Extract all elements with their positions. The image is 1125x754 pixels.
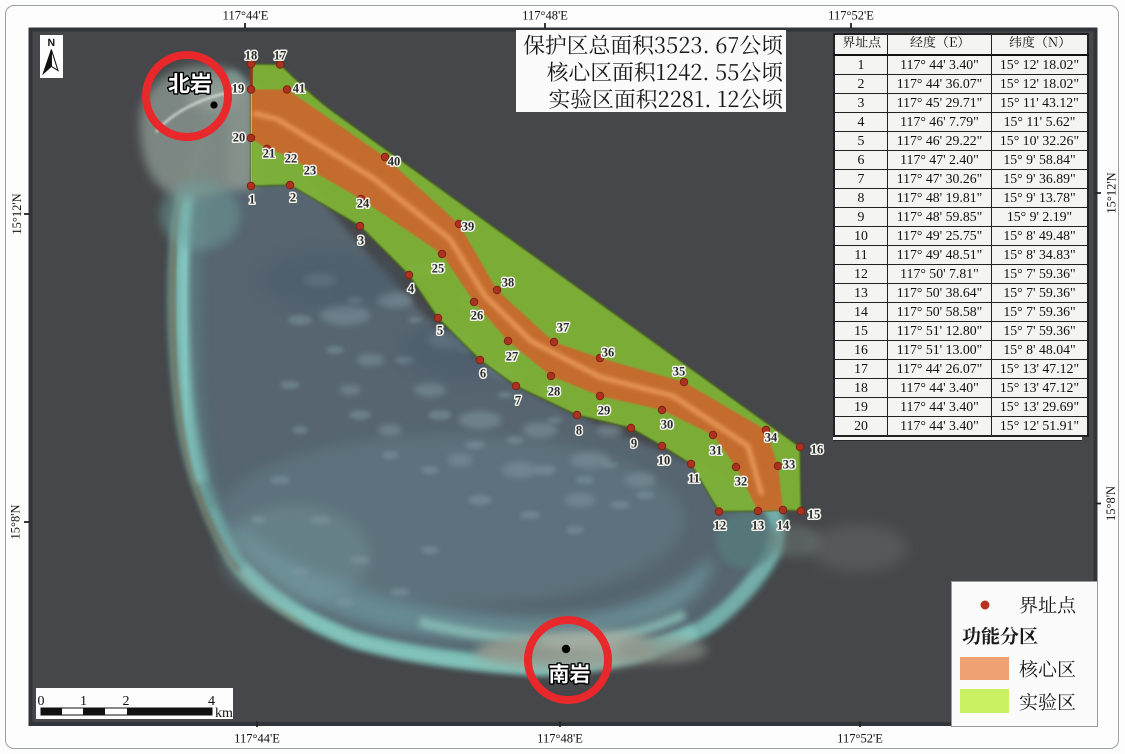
svg-text:1: 1 [249,193,255,207]
svg-text:23: 23 [304,164,317,178]
svg-text:20: 20 [233,131,246,145]
svg-text:28: 28 [548,385,561,399]
svg-text:15°8'N: 15°8'N [9,504,23,539]
svg-text:34: 34 [765,431,778,445]
svg-text:24: 24 [357,197,370,211]
svg-text:11: 11 [688,472,700,486]
svg-text:21: 21 [263,147,276,161]
svg-text:7: 7 [515,394,521,408]
svg-text:36: 36 [602,346,615,360]
svg-text:40: 40 [388,155,401,169]
svg-text:2: 2 [290,191,296,205]
svg-text:117°48'E: 117°48'E [537,732,583,746]
svg-text:3: 3 [358,234,364,248]
svg-text:15°12'N: 15°12'N [10,193,24,234]
svg-text:19: 19 [232,82,245,96]
svg-text:117°52'E: 117°52'E [828,9,874,23]
svg-text:32: 32 [735,475,748,489]
svg-text:17: 17 [274,49,287,63]
svg-text:12: 12 [714,519,727,533]
svg-text:km: km [215,706,233,721]
svg-text:41: 41 [293,82,306,96]
svg-text:31: 31 [710,444,723,458]
svg-text:5: 5 [437,324,443,338]
svg-text:33: 33 [783,458,796,472]
svg-text:16: 16 [811,443,824,457]
svg-text:26: 26 [471,309,484,323]
svg-text:14: 14 [777,519,790,533]
svg-text:35: 35 [673,365,686,379]
svg-text:15°12'N: 15°12'N [1105,172,1119,213]
svg-text:0: 0 [38,694,45,709]
svg-text:30: 30 [661,418,674,432]
svg-text:22: 22 [285,152,298,166]
svg-text:13: 13 [752,519,765,533]
svg-text:117°52'E: 117°52'E [837,732,883,746]
svg-text:37: 37 [557,321,570,335]
svg-text:117°44'E: 117°44'E [234,732,280,746]
svg-text:9: 9 [631,437,637,451]
svg-text:15: 15 [808,508,821,522]
svg-text:27: 27 [506,350,519,364]
svg-text:10: 10 [658,454,671,468]
svg-text:8: 8 [576,424,582,438]
svg-text:25: 25 [432,262,445,276]
svg-text:4: 4 [408,282,415,296]
svg-text:39: 39 [462,220,475,234]
svg-text:38: 38 [502,276,515,290]
svg-text:15°8'N: 15°8'N [1104,486,1118,521]
svg-text:4: 4 [208,694,215,709]
svg-text:29: 29 [598,404,611,418]
svg-text:1: 1 [80,694,87,709]
svg-text:117°44'E: 117°44'E [223,9,269,23]
svg-text:6: 6 [480,367,486,381]
svg-text:18: 18 [245,49,258,63]
svg-text:2: 2 [123,694,130,709]
svg-text:117°48'E: 117°48'E [522,9,568,23]
